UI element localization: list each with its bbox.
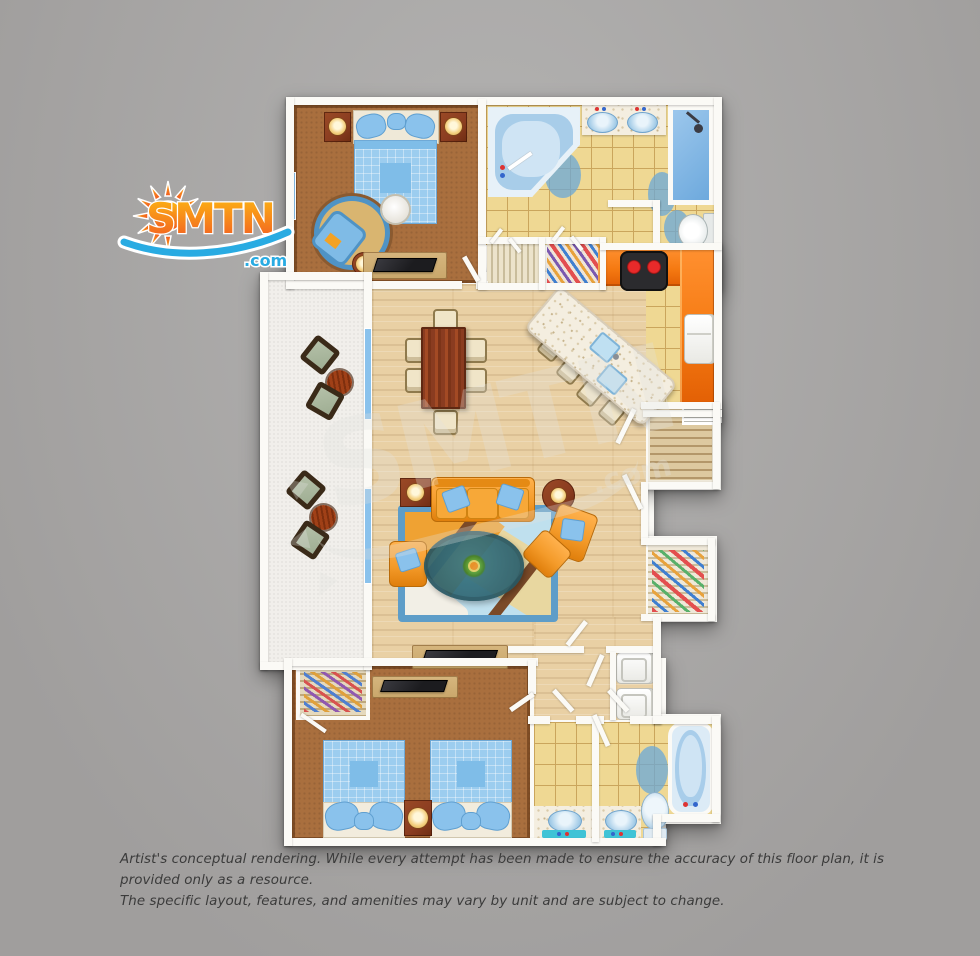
wall-segment: [592, 722, 599, 842]
wall-segment: [610, 652, 616, 720]
sink: [548, 810, 582, 832]
bedroom2-closet-clothes: [304, 672, 362, 712]
sofa-cushion: [467, 488, 498, 519]
logo-brand-text: SMTN: [146, 194, 274, 243]
shower-head-icon: [694, 124, 703, 133]
nightstand-left: [324, 112, 351, 142]
sink: [605, 810, 637, 832]
sofa: [431, 477, 535, 522]
vanity-sink-left: [587, 112, 618, 133]
fridge-divider: [687, 333, 711, 335]
wall-segment: [260, 272, 268, 670]
bed-left: [323, 740, 405, 838]
vanity-mat: [542, 830, 586, 838]
bathroom2-rug: [636, 746, 668, 794]
coat-closet-clothes: [652, 550, 704, 612]
wall-segment: [539, 237, 545, 290]
island-faucet: [612, 353, 620, 361]
hot-tap: [683, 802, 688, 807]
lamp: [551, 488, 566, 503]
hot-tap: [635, 107, 639, 111]
bedroom-side-table: [382, 196, 409, 223]
wall-segment: [286, 97, 722, 105]
wall-segment: [653, 617, 661, 724]
double-vanity: [582, 105, 666, 135]
wall-segment: [643, 410, 722, 417]
shower: [668, 105, 714, 205]
bedroom2-tv-console: [372, 676, 458, 698]
lamp: [329, 118, 346, 135]
wall-segment: [653, 814, 720, 822]
logo-tld-text: .com: [244, 251, 287, 270]
wall-segment: [714, 97, 722, 409]
armchair-left: [389, 541, 427, 587]
cold-tap: [642, 107, 646, 111]
hot-tap: [500, 165, 505, 170]
balcony-slider: [364, 488, 372, 584]
cold-tap: [602, 107, 606, 111]
tv: [373, 258, 438, 272]
quilt-band: [355, 141, 436, 149]
wall-segment: [284, 658, 292, 846]
quilt-center: [380, 163, 411, 193]
tv: [380, 680, 448, 692]
wall-segment: [641, 538, 715, 545]
sofa-side-table: [400, 478, 431, 507]
dining-chair: [433, 410, 458, 435]
wall-segment: [713, 402, 720, 489]
armchair-accent: [324, 233, 341, 249]
sofa-back: [434, 479, 530, 487]
wall-segment: [478, 99, 486, 289]
disclaimer-line2: The specific layout, features, and ameni…: [120, 892, 900, 913]
wall-segment: [508, 646, 584, 653]
dining-table: [421, 327, 466, 409]
wall-segment: [653, 200, 660, 248]
wall-segment: [286, 281, 462, 289]
shower-arm: [686, 111, 700, 124]
bathroom2-vanity-left: [534, 806, 594, 838]
plant-flower: [470, 562, 478, 570]
quilt-center: [457, 761, 485, 787]
cold-tap: [611, 832, 615, 836]
bed-quilt: [323, 740, 405, 806]
refrigerator: [684, 314, 716, 364]
balcony-slider: [364, 328, 372, 420]
vanity-sink-right: [627, 112, 658, 133]
armchair-pillow: [394, 547, 421, 573]
wardrobe-closet: [547, 243, 600, 285]
bathroom2-vanity-right: [599, 806, 641, 838]
cold-tap: [557, 832, 561, 836]
island-sink: [595, 363, 628, 396]
coffee-table: [424, 531, 524, 601]
bathtub: [668, 722, 714, 816]
bed-pillow: [387, 113, 406, 130]
wall-segment: [708, 538, 715, 621]
hot-tap: [619, 832, 623, 836]
lamp: [408, 808, 428, 828]
lamp: [445, 118, 462, 135]
range: [620, 251, 668, 291]
bedroom-tv-console: [363, 252, 447, 279]
bed-right: [430, 740, 512, 838]
wall-segment: [641, 482, 719, 489]
wall-segment: [528, 716, 550, 724]
washer-door: [621, 658, 647, 682]
linen-closet: [487, 243, 541, 285]
cold-tap: [500, 173, 505, 178]
wall-segment: [653, 716, 720, 724]
armchair-pillow: [560, 518, 586, 542]
smtn-logo-graphic: SMTN .com: [116, 176, 306, 276]
burner: [647, 260, 661, 274]
floor-plan-page: SMTN .com: [0, 0, 980, 956]
bed-pillow: [461, 812, 481, 830]
quilt-center: [350, 761, 378, 787]
hot-tap: [595, 107, 599, 111]
bed-quilt: [430, 740, 512, 806]
wall-segment: [641, 482, 648, 544]
lamp: [407, 484, 424, 501]
bed-pillow: [354, 812, 374, 830]
burner: [627, 260, 641, 274]
cold-tap: [693, 802, 698, 807]
wall-segment: [641, 402, 719, 409]
bedroom2-nightstand: [404, 800, 432, 836]
disclaimer: Artist's conceptual rendering. While eve…: [120, 850, 900, 912]
disclaimer-line1: Artist's conceptual rendering. While eve…: [120, 850, 900, 892]
hot-tap: [565, 832, 569, 836]
wall-segment: [712, 716, 720, 822]
wall-segment: [600, 243, 722, 250]
wall-segment: [528, 660, 536, 694]
tub-basin: [679, 735, 702, 797]
washer: [616, 652, 655, 684]
nightstand-right: [440, 112, 467, 142]
smtn-logo: SMTN .com: [116, 176, 306, 276]
wall-segment: [284, 838, 666, 846]
wall-segment: [286, 658, 538, 666]
